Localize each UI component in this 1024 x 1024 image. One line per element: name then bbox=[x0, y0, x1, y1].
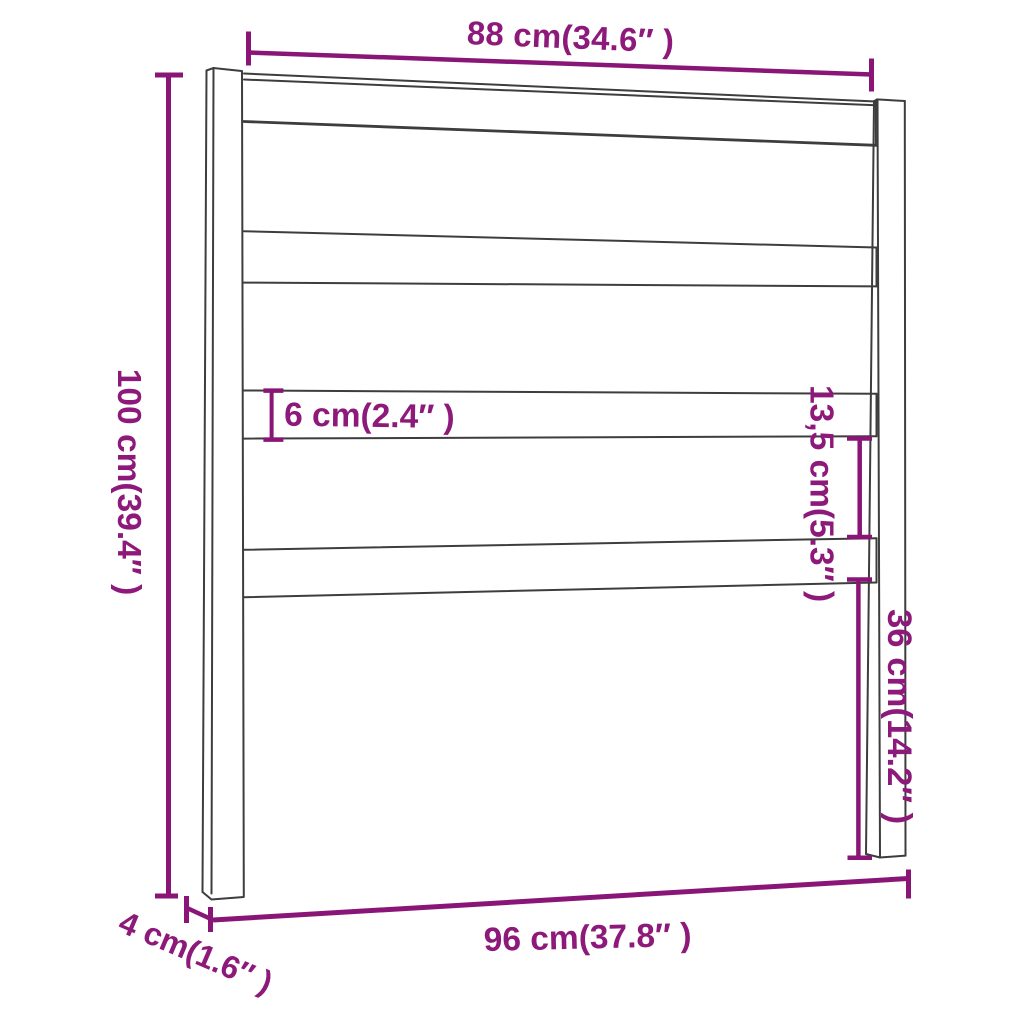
svg-text:13,5 cm(5.3″ ): 13,5 cm(5.3″ ) bbox=[803, 385, 840, 602]
svg-text:100 cm(39.4″ ): 100 cm(39.4″ ) bbox=[110, 369, 147, 596]
svg-text:36 cm(14.2″ ): 36 cm(14.2″ ) bbox=[880, 609, 918, 824]
svg-text:96 cm(37.8″ ): 96 cm(37.8″ ) bbox=[483, 917, 692, 959]
svg-text:6 cm(2.4″ ): 6 cm(2.4″ ) bbox=[284, 397, 455, 436]
